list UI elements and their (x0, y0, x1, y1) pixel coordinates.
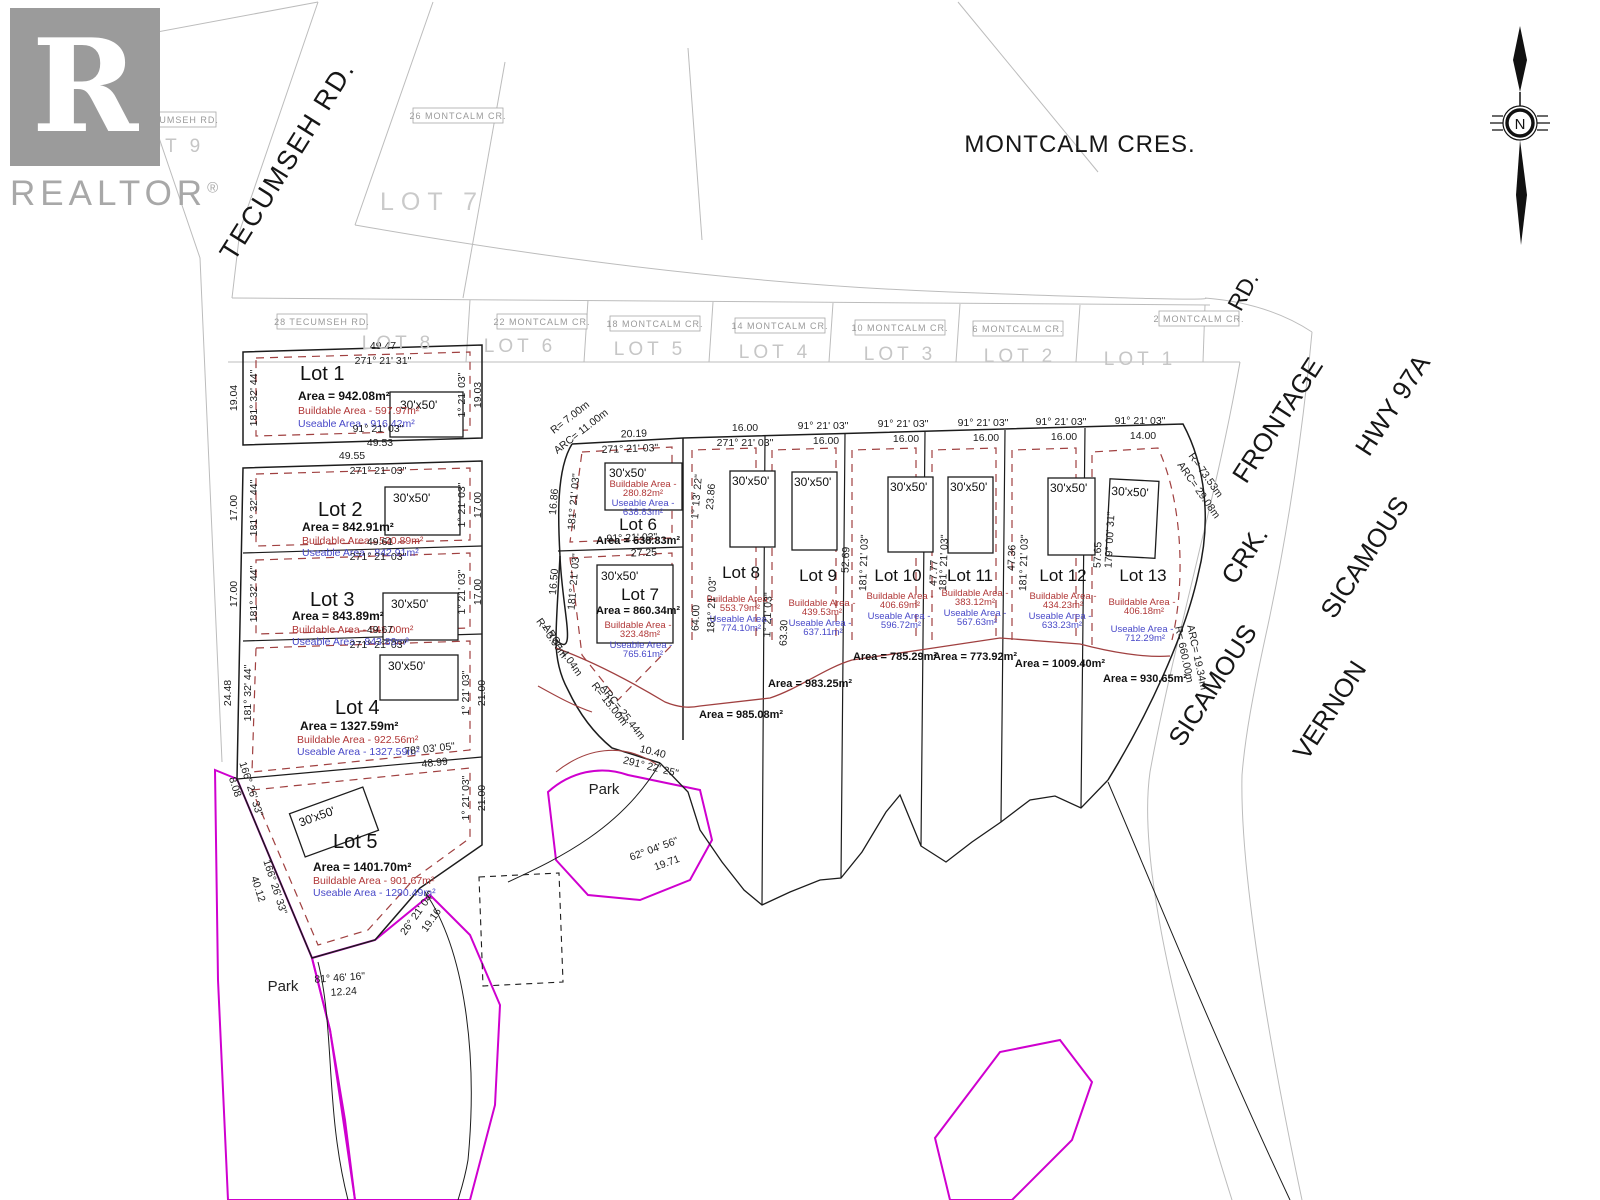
park-area-south (312, 895, 500, 1200)
dimension-label: 21.00 (476, 680, 488, 706)
address-label: 26 MONTCALM CR. (409, 111, 506, 121)
dimension-label: 16.00 (893, 433, 919, 445)
dimension-label: 16.00 (1051, 431, 1077, 443)
area-label: Area = (292, 609, 332, 623)
building-size-label: 30'x50' (950, 480, 987, 494)
plat-map-page: 30'x50' 30'x50' 30'x50' 30'x50' 30'x50' … (0, 0, 1600, 1200)
svg-text:Buildable Area - 520.89m²: Buildable Area - 520.89m² (302, 535, 424, 547)
buildable-label: Buildable Area - (292, 624, 369, 636)
park-label: Park (268, 978, 299, 995)
park-label: Park (589, 781, 620, 798)
dimension-label: 49.53 (367, 437, 393, 449)
dimension-label: 23.86 (704, 483, 718, 510)
lot-name: Lot 11 (947, 566, 993, 585)
buildable-value: 383.12m² (955, 597, 995, 608)
address-label: 10 MONTCALM CR. (851, 323, 948, 333)
dimension-label: 27.25 (631, 547, 658, 560)
area-value: 773.92m² (970, 651, 1017, 663)
red-contour (538, 686, 592, 712)
dimension-label: 1° 21' 03" (460, 670, 472, 715)
existing-lot-label: LOT 4 (739, 342, 811, 363)
dimension-label: 1° 21' 03" (460, 775, 472, 820)
realtor-wordmark: REALTOR (10, 174, 207, 213)
area-value: 860.34m² (633, 605, 680, 617)
park-area-southeast (935, 1040, 1092, 1200)
building-size-label: 30'x50' (609, 466, 646, 480)
north-arrow-head (1513, 26, 1527, 92)
useable-value: 765.61m² (623, 649, 663, 660)
svg-text:Area = 842.91m²: Area = 842.91m² (302, 520, 394, 534)
area-value: 1327.59m² (340, 719, 398, 733)
dimension-label: 181° 21' 03" (857, 534, 871, 591)
svg-text:Buildable Area - 922.56m²: Buildable Area - 922.56m² (297, 734, 419, 746)
dimension-label: 91° 21' 03" (878, 418, 929, 430)
address-label: 18 MONTCALM CR. (606, 319, 703, 329)
area-label: Area = (933, 651, 970, 663)
dimension-label: 1° 13' 22" (689, 474, 705, 520)
dimension-label: 1° 21' 03" (456, 482, 468, 527)
svg-text:Area = 983.25m²: Area = 983.25m² (768, 678, 852, 690)
dimension-label: 47.36 (1006, 544, 1019, 571)
dimension-label: 81° 46' 16" (314, 970, 366, 986)
existing-lot-label: LOT 7 (380, 188, 484, 216)
svg-text:Buildable Area - 597.97m²: Buildable Area - 597.97m² (298, 405, 420, 417)
realtor-logo: R REALTOR® (10, 8, 223, 214)
dimension-label: 16.50 (547, 568, 561, 595)
buildable-value: 434.23m² (1043, 600, 1083, 611)
svg-text:Useable Area - 1327.59m²: Useable Area - 1327.59m² (297, 746, 420, 758)
dimension-label: 91° 21' 03" (1036, 416, 1087, 428)
svg-text:Buildable Area - 901.67m²: Buildable Area - 901.67m² (313, 875, 435, 887)
dimension-label: 17.00 (228, 581, 240, 607)
dimension-label: 181° 21' 03" (566, 553, 583, 611)
dimension-label: 181° 21' 03" (566, 473, 583, 531)
address-label: 28 TECUMSEH RD. (274, 317, 370, 327)
lot-name: Lot 3 (310, 589, 354, 611)
buildable-label: Buildable Area - (298, 405, 375, 417)
parcel-edge (463, 62, 505, 298)
dimension-label: 19.71 (653, 853, 682, 873)
lot-name: Lot 13 (1119, 566, 1166, 585)
area-value: 930.65m² (1140, 673, 1187, 685)
existing-lot-label: LOT 2 (984, 346, 1056, 367)
dimension-label: 1° 21' 03" (456, 372, 468, 417)
north-arrow-tail (1516, 140, 1527, 245)
existing-lot-label: LOT 3 (864, 344, 936, 365)
dimension-label: 14.00 (1130, 430, 1156, 442)
svg-text:Area = 942.08m²: Area = 942.08m² (298, 389, 390, 403)
svg-text:Area = 785.29m²: Area = 785.29m² (853, 651, 937, 663)
dimension-label: 181° 21' 03" (1017, 534, 1031, 591)
svg-text:Buildable Area - 541.00m²: Buildable Area - 541.00m² (292, 624, 414, 636)
dimension-label: 16.00 (973, 432, 999, 444)
area-label: Area = (768, 678, 805, 690)
dimension-label: 91° 21' 03" (606, 531, 657, 545)
building-size-label: 30'x50' (391, 597, 428, 611)
existing-lot-label: LOT 6 (484, 336, 556, 357)
building-size-label: 30'x50' (794, 475, 831, 489)
svg-text:Area = 843.89m²: Area = 843.89m² (292, 609, 384, 623)
buildable-value: 406.18m² (1124, 606, 1164, 617)
dimension-label: 16.00 (813, 435, 839, 447)
area-label: Area = (699, 709, 736, 721)
area-label: Area = (300, 719, 340, 733)
realtor-logo-letter: R (32, 23, 138, 151)
lot-name: Lot 12 (1039, 566, 1086, 585)
area-value: 983.25m² (805, 678, 852, 690)
svg-text:Area = 1327.59m²: Area = 1327.59m² (300, 719, 398, 733)
buildable-value: 406.69m² (880, 600, 920, 611)
dimension-label: 20.19 (621, 428, 648, 441)
dimension-label: 21.00 (476, 785, 488, 811)
building-size-label: 30'x50' (388, 659, 425, 673)
address-label: 14 MONTCALM CR. (731, 321, 828, 331)
north-arrow: N (1490, 26, 1550, 245)
area-label: Area = (313, 860, 353, 874)
useable-label: Useable Area - (313, 887, 385, 899)
dimension-label: 181° 21' 03" (937, 534, 951, 591)
buildable-value: 901.67m² (390, 875, 435, 887)
dimension-label: 64.00 (690, 604, 703, 631)
lot-band-top (232, 298, 1210, 305)
dimension-label: ARC= 4.04m (540, 622, 585, 679)
building-size-label: 30'x50' (1050, 481, 1087, 495)
lot-name: Lot 2 (318, 499, 362, 521)
buildable-label: Buildable Area - (297, 734, 374, 746)
area-label: Area = (1015, 658, 1052, 670)
area-label: Area = (302, 520, 342, 534)
buildable-value: 597.97m² (375, 405, 420, 417)
dimension-label: 271° 21' 03" (350, 551, 407, 563)
lot-name: Lot 7 (621, 585, 659, 604)
registered-mark: ® (207, 179, 223, 196)
lot-name: Lot 1 (300, 363, 344, 385)
dimension-label: 49.55 (339, 450, 365, 462)
useable-label: Useable Area - (297, 746, 369, 758)
address-label: 22 MONTCALM CR. (493, 317, 590, 327)
buildable-value: 323.48m² (620, 629, 660, 640)
dimension-label: 271° 21' 03" (350, 465, 407, 477)
area-value: 985.08m² (736, 709, 783, 721)
dimension-label: 17.00 (228, 495, 240, 521)
building-size-label: 30'x50' (1111, 484, 1149, 500)
svg-text:Area = 1401.70m²: Area = 1401.70m² (313, 860, 411, 874)
building-size-label: 30'x50' (601, 569, 638, 583)
buildable-value: 553.79m² (720, 603, 760, 614)
street-label-tecumseh: TECUMSEH RD. (214, 55, 361, 266)
dimension-label: 52.69 (840, 546, 853, 573)
dimension-label: 1° 21' 03" (761, 592, 775, 638)
creek-line (425, 892, 471, 1200)
street-label-montcalm: MONTCALM CRES. (964, 131, 1195, 158)
dashed-parcel (479, 873, 563, 986)
parcel-edge (688, 48, 702, 240)
dimension-label: ARC= 25.44m (597, 682, 647, 742)
lot-name: Lot 5 (333, 831, 377, 853)
svg-text:Area = 773.92m²: Area = 773.92m² (933, 651, 1017, 663)
dimension-label: 271° 21' 03" (350, 639, 407, 651)
street-label-hwy97a: HWY 97A (1349, 349, 1436, 461)
area-label: Area = (298, 389, 338, 403)
lot-name: Lot 9 (799, 566, 837, 585)
dimension-label: 16.86 (547, 488, 561, 515)
dimension-label: 181° 32' 44" (242, 664, 254, 721)
dimension-label: 181° 32' 44" (248, 369, 260, 426)
dimension-label: 271° 21' 03" (717, 437, 774, 449)
park-area-middle (548, 770, 712, 900)
dimension-label: 48.99 (421, 756, 449, 771)
building-size-label: 30'x50' (732, 474, 769, 488)
dimension-label: 1° 21' 03" (456, 569, 468, 614)
street-label-frontage-crk: CRK. (1215, 521, 1274, 589)
lot-name: Lot 10 (874, 566, 921, 585)
plat-map: 30'x50' 30'x50' 30'x50' 30'x50' 30'x50' … (0, 0, 1600, 1200)
street-label-frontage: FRONTAGE (1226, 352, 1329, 488)
useable-value: 637.11m² (803, 627, 842, 638)
dimension-label: 91° 21' 03" (798, 420, 849, 432)
realtor-logo-text: REALTOR® (10, 174, 223, 214)
park-north-line (508, 763, 660, 882)
area-label: Area = (596, 605, 633, 617)
realtor-logo-mark: R (10, 8, 160, 166)
dimension-label: 63.30 (778, 619, 791, 646)
area-value: 942.08m² (338, 389, 389, 403)
existing-lot-label: LOT 1 (1104, 349, 1176, 370)
useable-value: 712.29m² (1125, 633, 1165, 644)
dimension-label: 271° 21' 03" (601, 442, 658, 456)
dimension-label: 24.48 (222, 680, 234, 706)
dimension-label: 16.00 (732, 422, 758, 434)
area-label: Area = (1103, 673, 1140, 685)
dimension-label: 179° 00' 31" (1103, 511, 1118, 568)
address-label: 6 MONTCALM CR. (972, 324, 1063, 334)
dimension-label: 17.00 (472, 579, 484, 605)
dimension-label: 19.03 (472, 382, 484, 408)
lot-6-7-divider (558, 547, 683, 551)
dimension-label: 17.00 (472, 492, 484, 518)
useable-value: 567.63m² (957, 617, 997, 628)
useable-value: 596.72m² (881, 620, 921, 631)
dimension-label: 12.24 (330, 985, 357, 999)
dimension-label: 181° 32' 44" (248, 565, 260, 622)
dimension-label: 181° 32' 44" (248, 479, 260, 536)
dimension-label: 91° 21' 03" (1115, 415, 1166, 427)
existing-lot-label: LOT 5 (614, 339, 686, 360)
useable-value: 774.10m² (721, 623, 761, 634)
dimension-label: 49.67 (367, 624, 393, 636)
dimension-label: 271° 21' 31" (355, 355, 412, 367)
street-label-vernon: VERNON (1287, 655, 1373, 765)
svg-text:Area = 985.08m²: Area = 985.08m² (699, 709, 783, 721)
area-value: 1401.70m² (353, 860, 411, 874)
lot-name: Lot 8 (722, 563, 760, 582)
lot-band-dividers (466, 300, 1205, 362)
area-value: 843.89m² (332, 609, 383, 623)
area-value: 785.29m² (890, 651, 937, 663)
useable-value: 633.23m² (1042, 620, 1082, 631)
address-label: 2 MONTCALM CR. (1153, 314, 1244, 324)
area-value: 842.91m² (342, 520, 393, 534)
north-label: N (1515, 116, 1526, 133)
lots-8-13-bottom-boundary (660, 763, 1108, 905)
svg-text:Area = 930.65m²: Area = 930.65m² (1103, 673, 1187, 685)
dimension-label: 49.61 (367, 536, 393, 548)
lot-name: Lot 4 (335, 697, 379, 719)
area-value: 1009.40m² (1052, 658, 1106, 670)
dimension-label: 181° 21' 03" (705, 576, 719, 633)
area-label: Area = (853, 651, 890, 663)
svg-text:Area = 1009.40m²: Area = 1009.40m² (1015, 658, 1106, 670)
dimension-label: 91° 21' 03" (958, 417, 1009, 429)
svg-text:Area = 860.34m²: Area = 860.34m² (596, 605, 680, 617)
building-size-label: 30'x50' (393, 491, 430, 505)
buildable-value: 439.53m² (802, 607, 842, 618)
building-size-label: 30'x50' (890, 480, 927, 494)
buildable-label: Buildable Area - (313, 875, 390, 887)
dimension-label: 19.04 (228, 385, 240, 411)
dimension-label: 91° 21' 03" (353, 423, 404, 435)
dimension-label: 40.12 (248, 875, 268, 904)
svg-text:Useable Area - 1290.49m²: Useable Area - 1290.49m² (313, 887, 436, 899)
existing-lot-label: LOT 8 (362, 333, 434, 354)
street-label-sicamous: SICAMOUS (1314, 491, 1415, 624)
